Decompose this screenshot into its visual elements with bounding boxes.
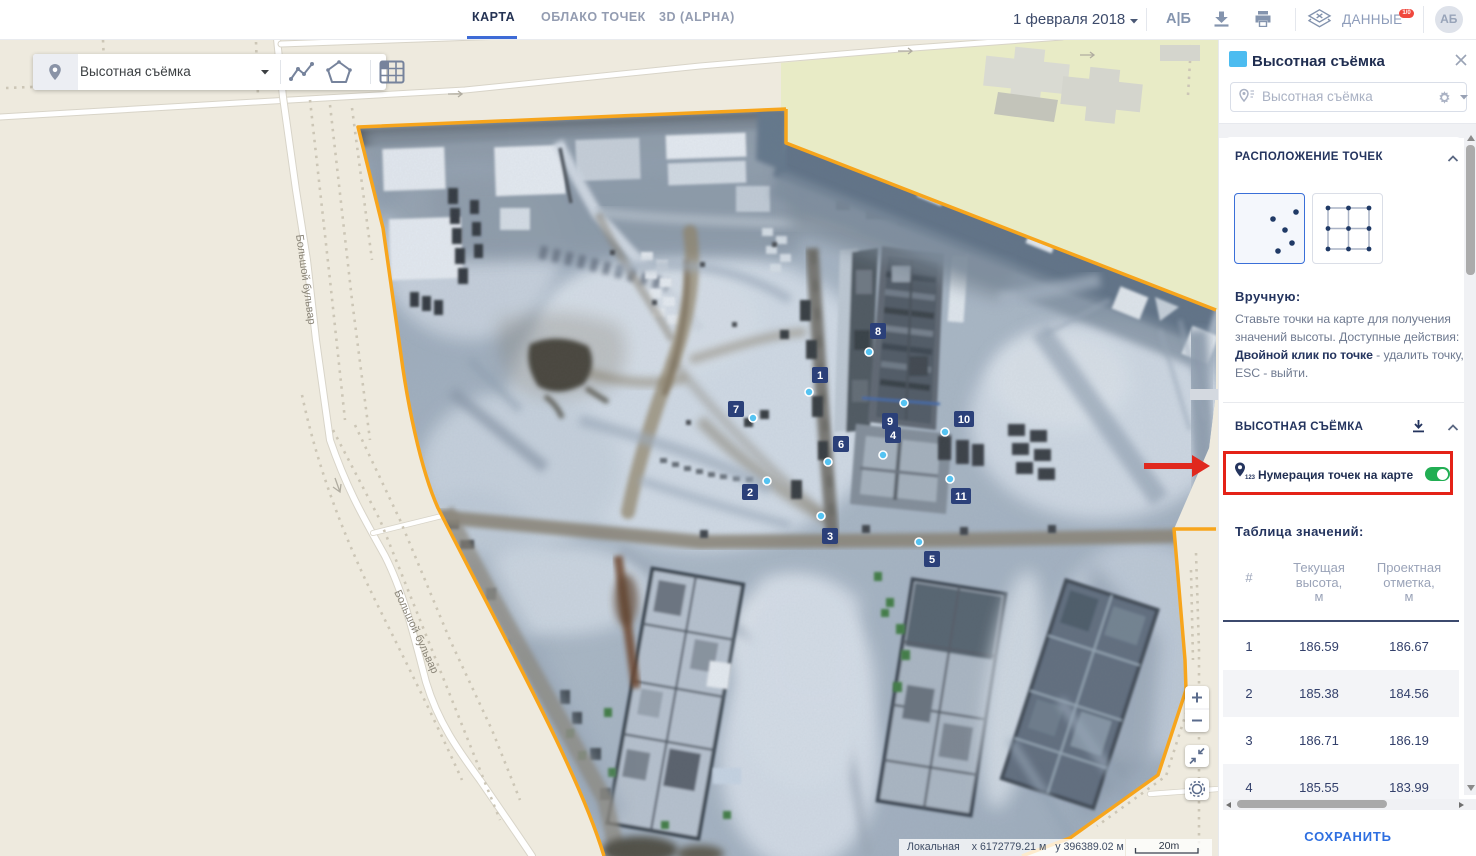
svg-text:123: 123	[1245, 475, 1255, 481]
svg-text:1: 1	[817, 370, 823, 382]
svg-text:8: 8	[875, 326, 881, 338]
svg-text:2: 2	[747, 487, 753, 499]
svg-text:10: 10	[958, 414, 970, 426]
svg-text:5: 5	[929, 554, 935, 566]
svg-text:7: 7	[733, 404, 739, 416]
svg-text:11: 11	[955, 491, 967, 503]
svg-text:9: 9	[887, 416, 893, 428]
svg-text:4: 4	[890, 430, 897, 442]
svg-text:3: 3	[827, 531, 833, 543]
svg-text:6: 6	[838, 439, 844, 451]
